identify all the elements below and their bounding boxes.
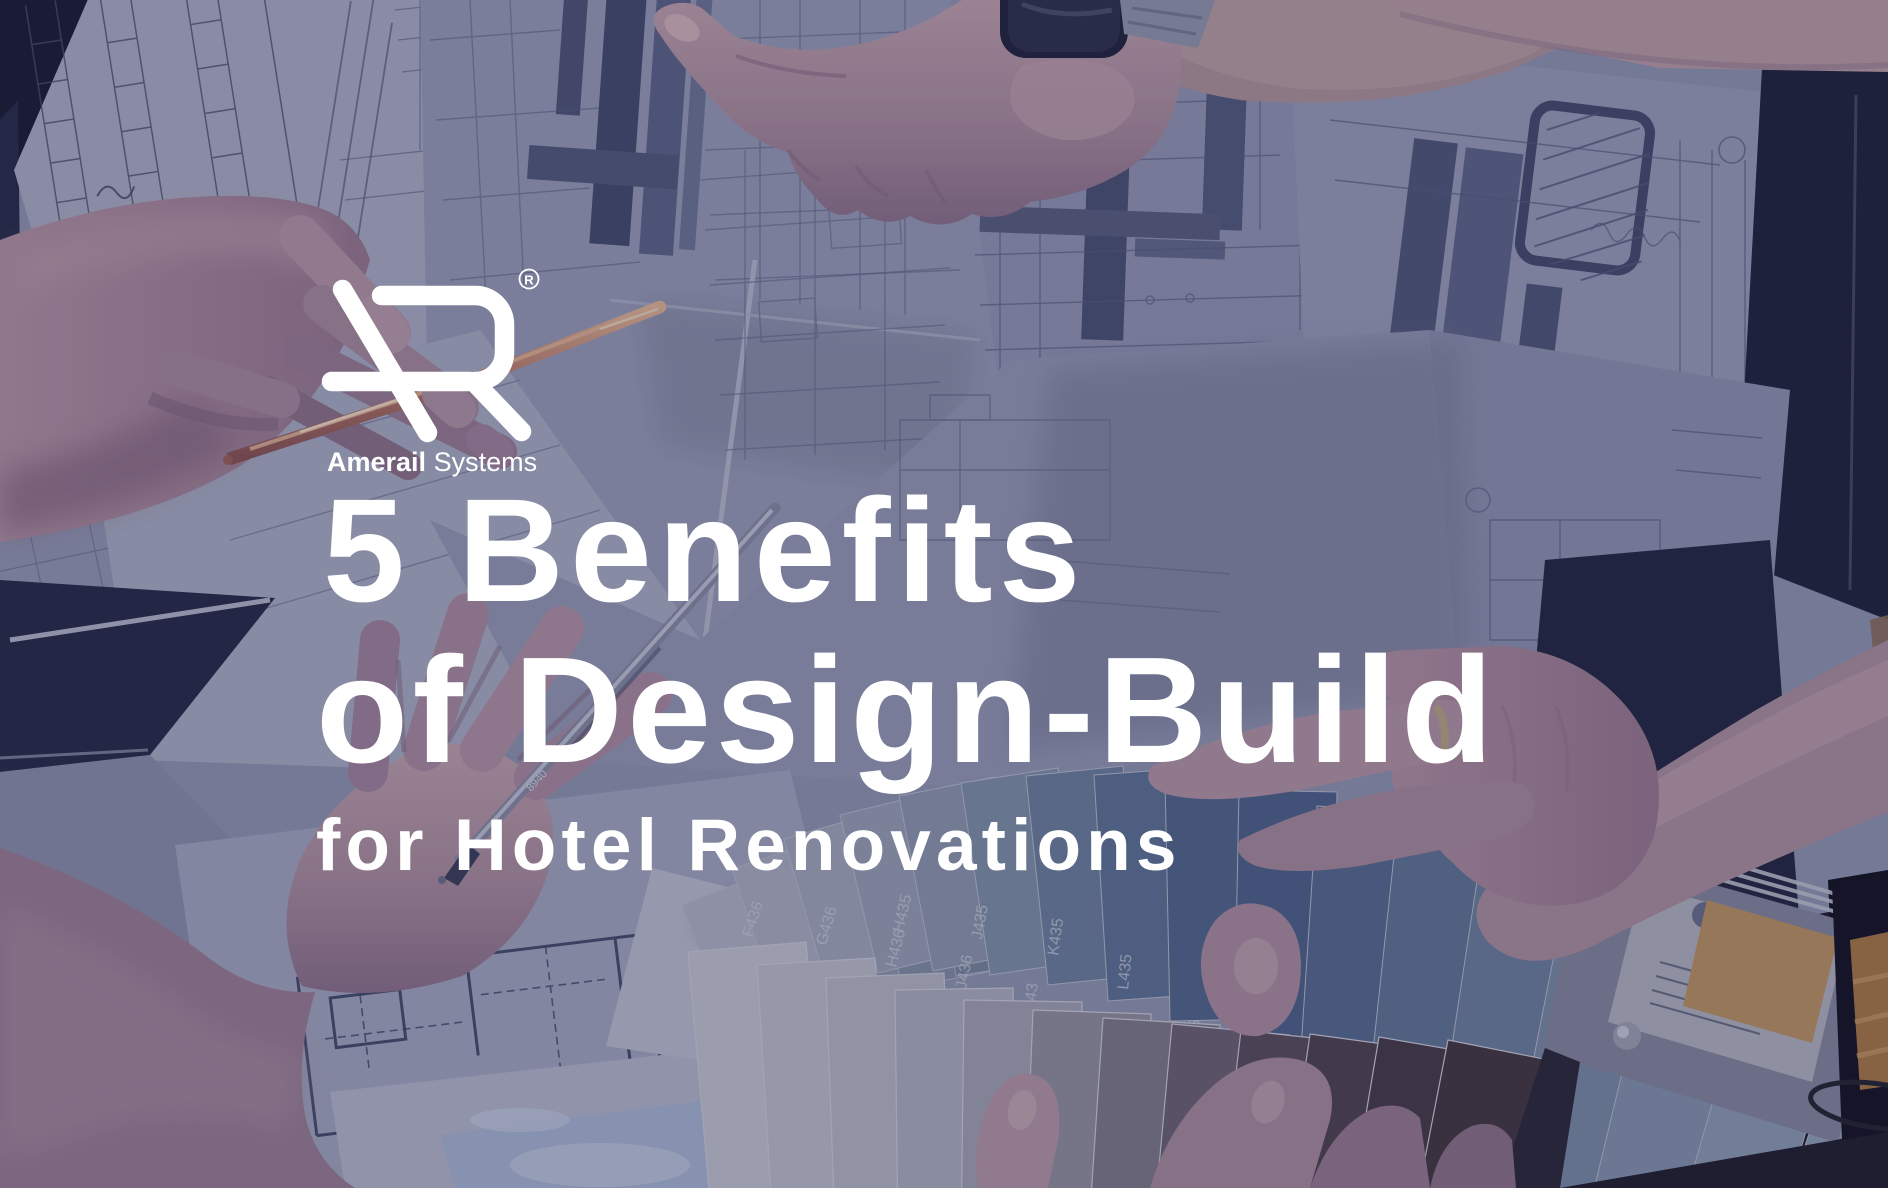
svg-text:R: R: [524, 273, 534, 288]
